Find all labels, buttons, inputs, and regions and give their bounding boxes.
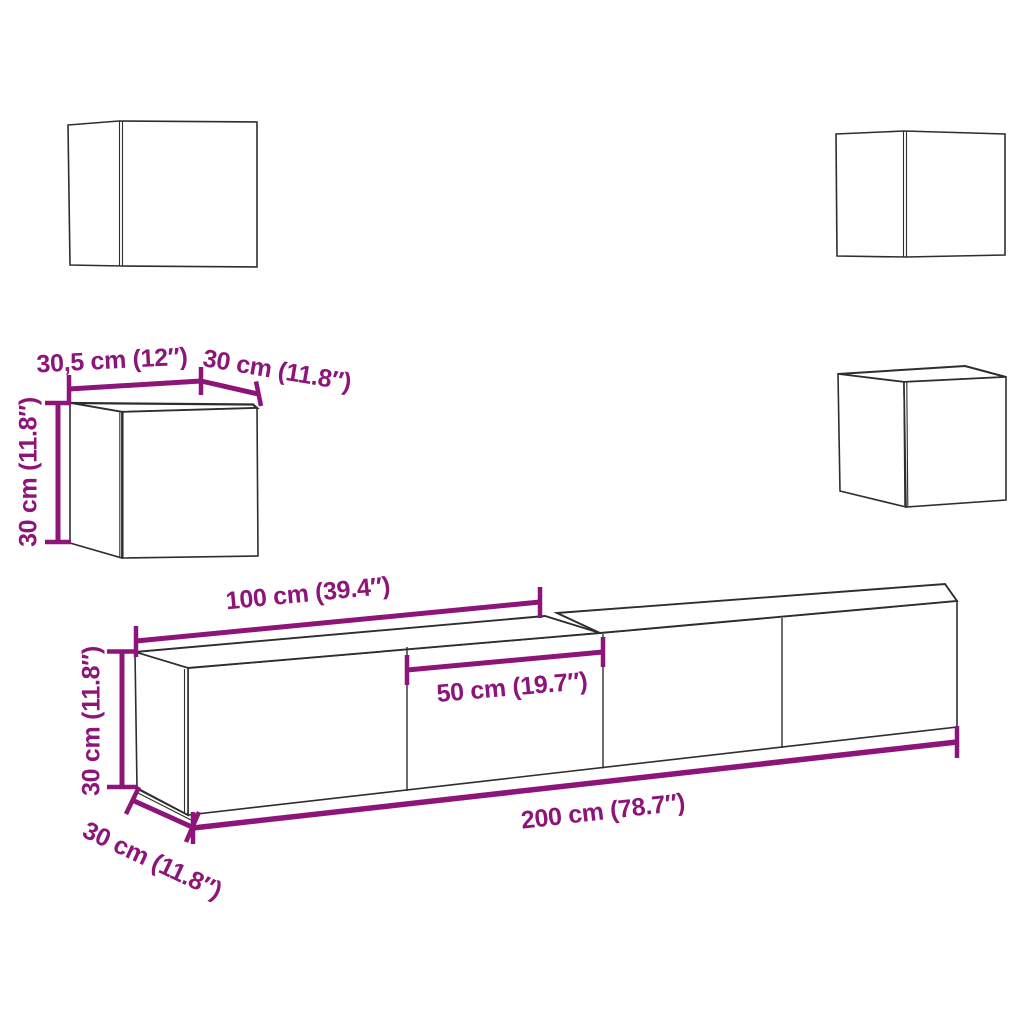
- cabinet-outline: [68, 121, 257, 267]
- wall-cabinet-middle-left: [70, 403, 258, 558]
- tv-cabinet-side-face: [135, 652, 188, 815]
- cabinet-outline: [836, 131, 1005, 257]
- dimension-cube-height: [45, 403, 71, 542]
- wall-cabinet-top-right: [836, 131, 1005, 257]
- cabinet-side-face: [70, 403, 122, 558]
- dimension-label-cube-height: 30 cm (11.8″): [17, 397, 42, 547]
- cabinet-front-face: [904, 377, 1006, 507]
- wall-cabinet-middle-right: [838, 366, 1006, 507]
- dimension-label-cabinet-height: 30 cm (11.8″): [80, 646, 105, 796]
- dimension-cube-depth: [201, 381, 261, 406]
- furniture-dimension-diagram: 30,5 cm (12″) 30 cm (11.8″) 30 cm (11.8″…: [0, 0, 1024, 1024]
- cabinet-front-face: [122, 408, 258, 558]
- cabinet-side-face: [838, 374, 906, 507]
- dimension-cabinet-height: [107, 652, 138, 788]
- tv-cabinet: [135, 584, 957, 820]
- dimension-tick: [256, 382, 261, 407]
- wall-cabinet-top-left: [68, 121, 257, 267]
